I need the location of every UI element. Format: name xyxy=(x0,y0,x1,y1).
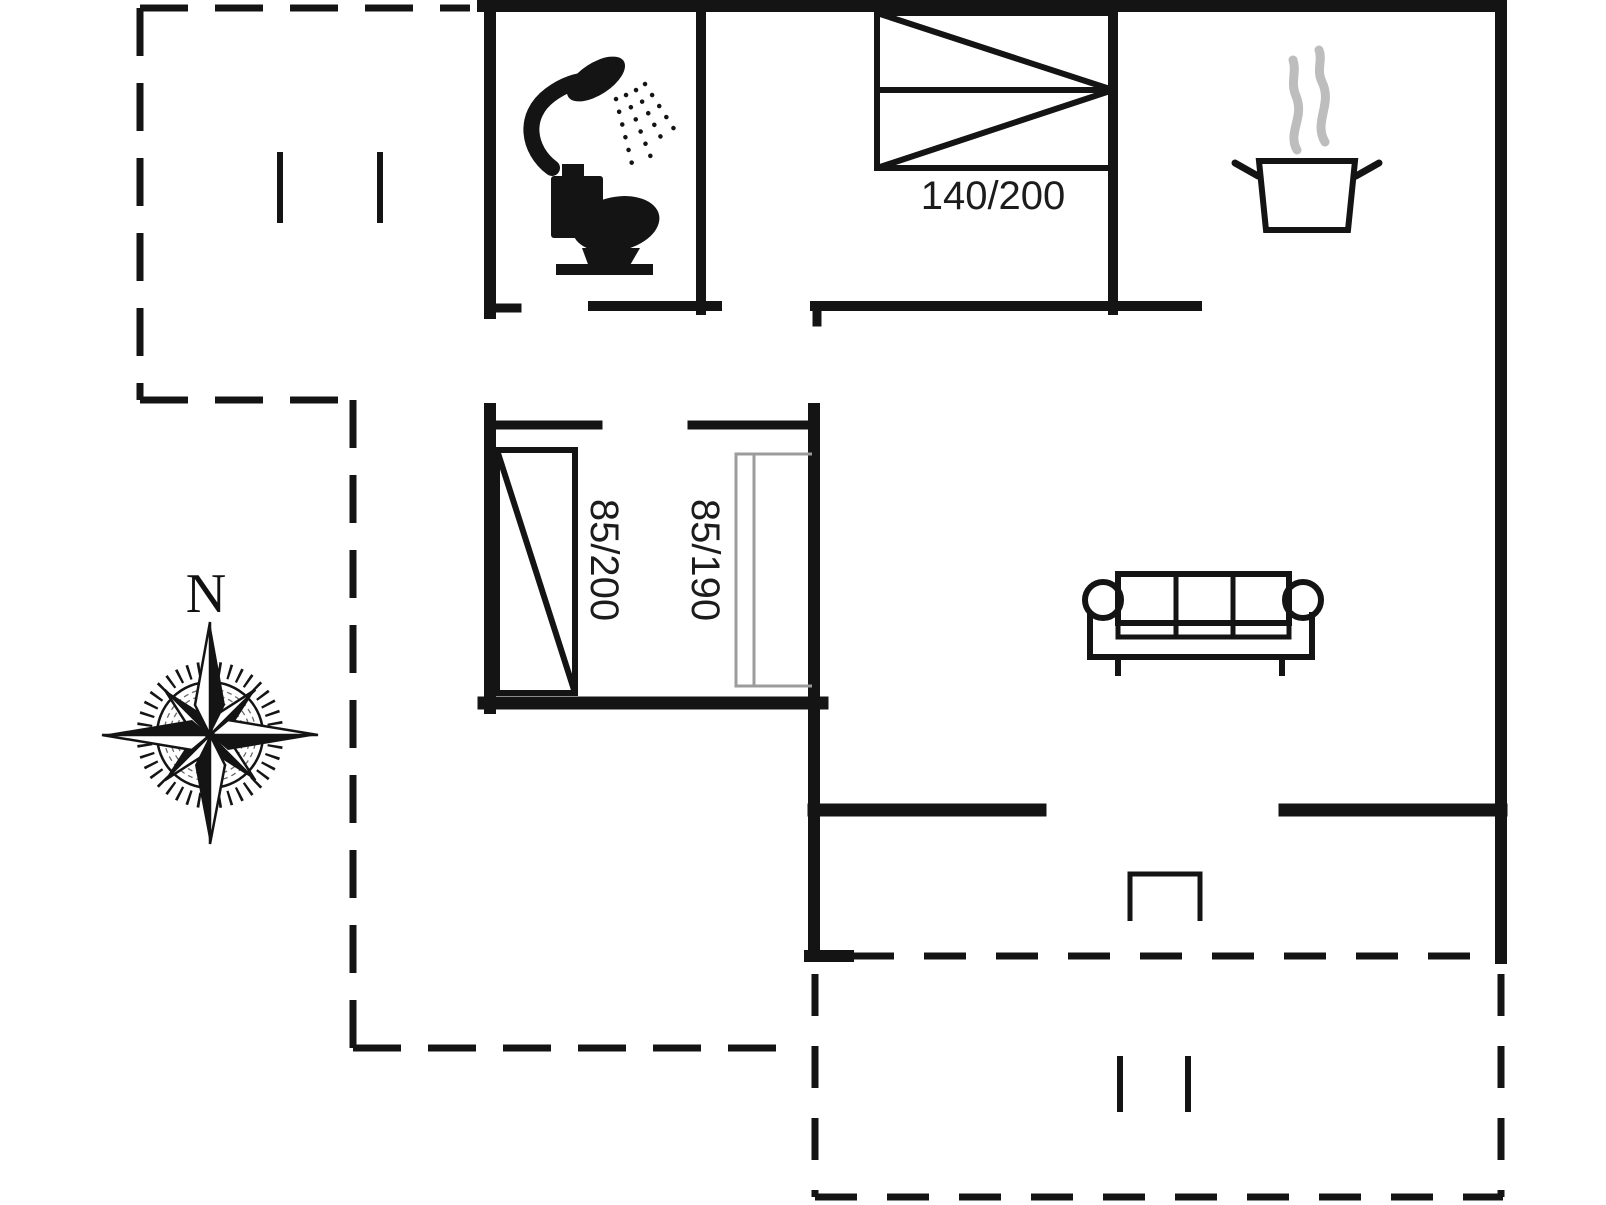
single-bed-right-outline xyxy=(736,454,812,686)
single-bed-left-size-label: 85/200 xyxy=(582,499,626,621)
sofa-cushions xyxy=(1118,574,1289,623)
sofa-icon xyxy=(1085,574,1321,676)
double-bed-diagonal-bottom xyxy=(877,90,1113,168)
single-bed-symbol: 85/200 xyxy=(497,450,626,693)
compass-east-point xyxy=(210,735,318,750)
shower-icon xyxy=(531,48,676,168)
doormat-symbol xyxy=(1130,874,1200,921)
pot-handle-right xyxy=(1356,163,1379,176)
double-bed-size-label: 140/200 xyxy=(921,174,1066,218)
toilet-icon xyxy=(551,164,665,275)
single-bed-left-diagonal xyxy=(497,450,575,693)
sofa-front-band xyxy=(1118,623,1289,637)
double-bed-symbol: 140/200 xyxy=(877,13,1113,218)
compass-north-label: N xyxy=(186,563,226,625)
compass-west-point xyxy=(102,720,210,735)
steam-icon xyxy=(1319,50,1325,142)
pot-handle-left xyxy=(1235,163,1258,176)
single-bed-symbol-gray: 85/190 xyxy=(683,454,812,686)
single-bed-right-size-label: 85/190 xyxy=(683,499,727,621)
compass-center xyxy=(205,730,215,740)
floor-plan-svg: 140/200 85/200 85/190 xyxy=(0,0,1606,1205)
terrace-outlines xyxy=(140,8,1503,1197)
floor-plan-page: 140/200 85/200 85/190 xyxy=(0,0,1606,1205)
compass-rose-icon xyxy=(102,622,318,844)
double-bed-diagonal-top xyxy=(877,13,1113,90)
shower-spray xyxy=(636,90,666,147)
pot-body xyxy=(1259,161,1355,230)
cooking-pot-icon xyxy=(1235,50,1379,230)
toilet-base xyxy=(556,264,653,275)
shower-spray xyxy=(645,84,676,132)
walls xyxy=(483,2,1501,958)
steam-icon xyxy=(1293,60,1299,150)
toilet-button xyxy=(562,164,584,178)
sofa-cushion-dividers xyxy=(1176,574,1233,637)
